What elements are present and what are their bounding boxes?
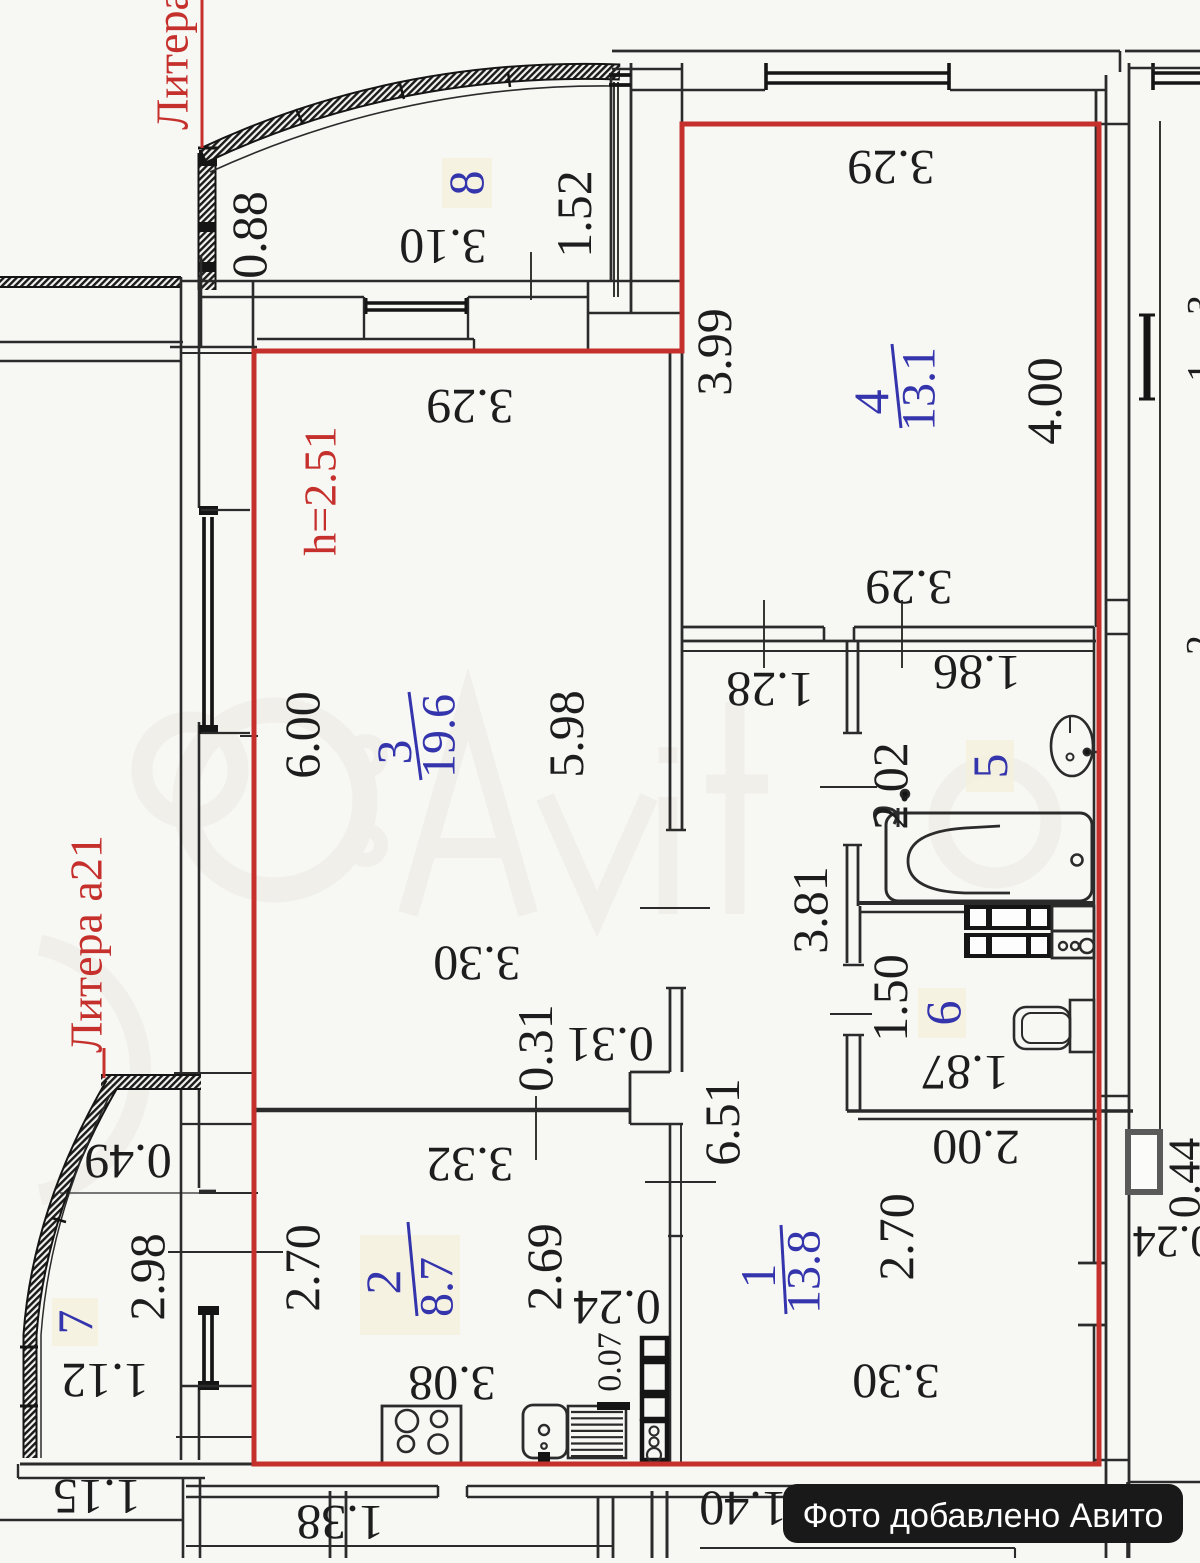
svg-text:0.88: 0.88	[221, 191, 277, 279]
svg-text:7: 7	[47, 1310, 103, 1335]
svg-text:Фото добавлено Авито: Фото добавлено Авито	[803, 1497, 1164, 1535]
svg-text:6.51: 6.51	[694, 1078, 750, 1166]
svg-text:13.1: 13.1	[893, 347, 946, 431]
svg-text:1.40: 1.40	[699, 1481, 787, 1537]
svg-text:3.29: 3.29	[865, 560, 953, 616]
svg-text:2.98: 2.98	[119, 1233, 175, 1321]
svg-text:2: 2	[1178, 635, 1200, 655]
svg-text:5: 5	[962, 754, 1018, 779]
svg-text:3.30: 3.30	[852, 1354, 940, 1410]
svg-text:4: 4	[843, 390, 899, 415]
svg-text:2.70: 2.70	[274, 1224, 330, 1312]
svg-text:0.49: 0.49	[84, 1134, 172, 1190]
svg-text:1.87: 1.87	[921, 1045, 1009, 1101]
svg-text:0.31: 0.31	[507, 1004, 563, 1092]
svg-text:h=2.51: h=2.51	[295, 426, 346, 555]
svg-text:0.07: 0.07	[592, 1332, 629, 1392]
svg-text:3: 3	[1179, 295, 1200, 315]
svg-text:0.24: 0.24	[573, 1280, 661, 1336]
svg-text:5.98: 5.98	[538, 690, 594, 778]
svg-text:4.00: 4.00	[1016, 357, 1072, 445]
svg-text:Литера: Литера	[147, 0, 198, 130]
svg-text:0.44: 0.44	[1159, 1138, 1200, 1219]
svg-text:2.70: 2.70	[868, 1193, 924, 1281]
svg-text:1.52: 1.52	[546, 170, 602, 258]
svg-text:3.30: 3.30	[433, 936, 521, 992]
svg-text:2.02: 2.02	[862, 742, 918, 830]
svg-text:1.50: 1.50	[862, 954, 918, 1042]
svg-text:8.7: 8.7	[411, 1257, 464, 1317]
svg-text:6: 6	[915, 1001, 971, 1026]
svg-text:3.99: 3.99	[686, 308, 742, 396]
svg-text:1.86: 1.86	[933, 645, 1021, 701]
svg-text:19.6: 19.6	[413, 694, 466, 778]
svg-text:2.00: 2.00	[932, 1120, 1020, 1176]
svg-text:3.32: 3.32	[426, 1137, 514, 1193]
svg-text:1.38: 1.38	[296, 1495, 384, 1551]
svg-text:1.12: 1.12	[61, 1353, 149, 1409]
svg-text:13.8: 13.8	[778, 1230, 831, 1314]
svg-text:0.24: 0.24	[1133, 1217, 1200, 1268]
svg-text:3.81: 3.81	[782, 866, 838, 954]
svg-text:0.31: 0.31	[566, 1017, 654, 1073]
svg-text:1: 1	[1179, 362, 1200, 382]
svg-text:1.28: 1.28	[726, 662, 814, 718]
svg-text:6.00: 6.00	[274, 691, 330, 779]
svg-text:3.29: 3.29	[847, 140, 935, 196]
svg-text:8: 8	[438, 171, 494, 196]
svg-text:Литера а21: Литера а21	[61, 835, 112, 1053]
svg-text:3.08: 3.08	[408, 1356, 496, 1412]
svg-text:2.69: 2.69	[516, 1223, 572, 1311]
svg-text:3.10: 3.10	[399, 219, 487, 275]
svg-text:3.29: 3.29	[426, 379, 514, 435]
svg-text:2: 2	[355, 1270, 411, 1295]
svg-text:1.15: 1.15	[53, 1469, 141, 1525]
